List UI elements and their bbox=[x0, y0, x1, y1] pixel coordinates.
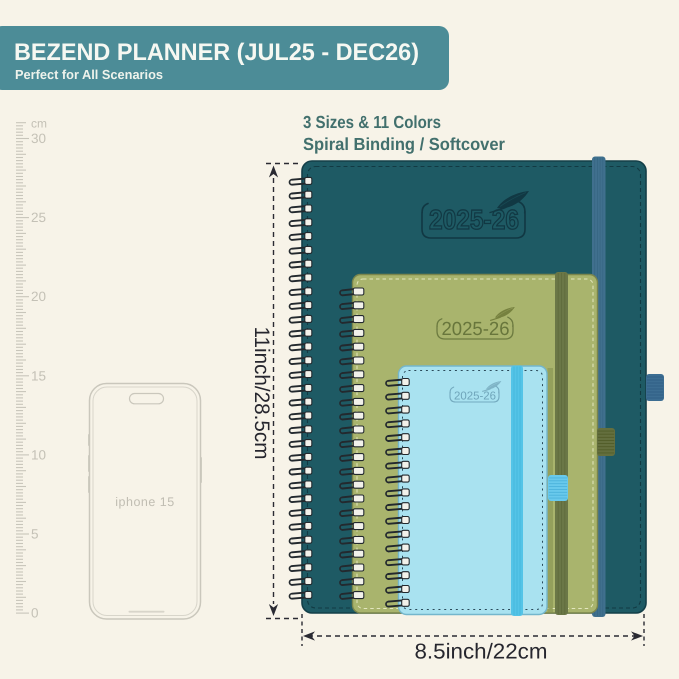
svg-text:25: 25 bbox=[31, 210, 46, 225]
svg-text:10: 10 bbox=[31, 447, 46, 462]
svg-text:5: 5 bbox=[31, 527, 39, 542]
svg-text:BEZEND PLANNER (JUL25 - DEC26): BEZEND PLANNER (JUL25 - DEC26) bbox=[14, 39, 419, 66]
svg-text:20: 20 bbox=[31, 289, 46, 304]
svg-text:iphone 15: iphone 15 bbox=[115, 495, 174, 509]
svg-text:3 Sizes & 11 Colors: 3 Sizes & 11 Colors bbox=[303, 112, 441, 132]
svg-text:Spiral Binding / Softcover: Spiral Binding / Softcover bbox=[303, 134, 505, 154]
svg-text:0: 0 bbox=[31, 606, 39, 621]
svg-text:2025-26: 2025-26 bbox=[429, 204, 519, 235]
svg-text:15: 15 bbox=[31, 368, 46, 383]
svg-text:Perfect for All Scenarios: Perfect for All Scenarios bbox=[15, 67, 163, 82]
svg-text:2025-26: 2025-26 bbox=[442, 319, 510, 340]
svg-text:30: 30 bbox=[31, 131, 46, 146]
svg-text:2025-26: 2025-26 bbox=[454, 391, 496, 403]
svg-text:11inch/28.5cm: 11inch/28.5cm bbox=[250, 327, 273, 460]
svg-text:8.5inch/22cm: 8.5inch/22cm bbox=[415, 640, 548, 664]
svg-text:cm: cm bbox=[31, 117, 47, 131]
